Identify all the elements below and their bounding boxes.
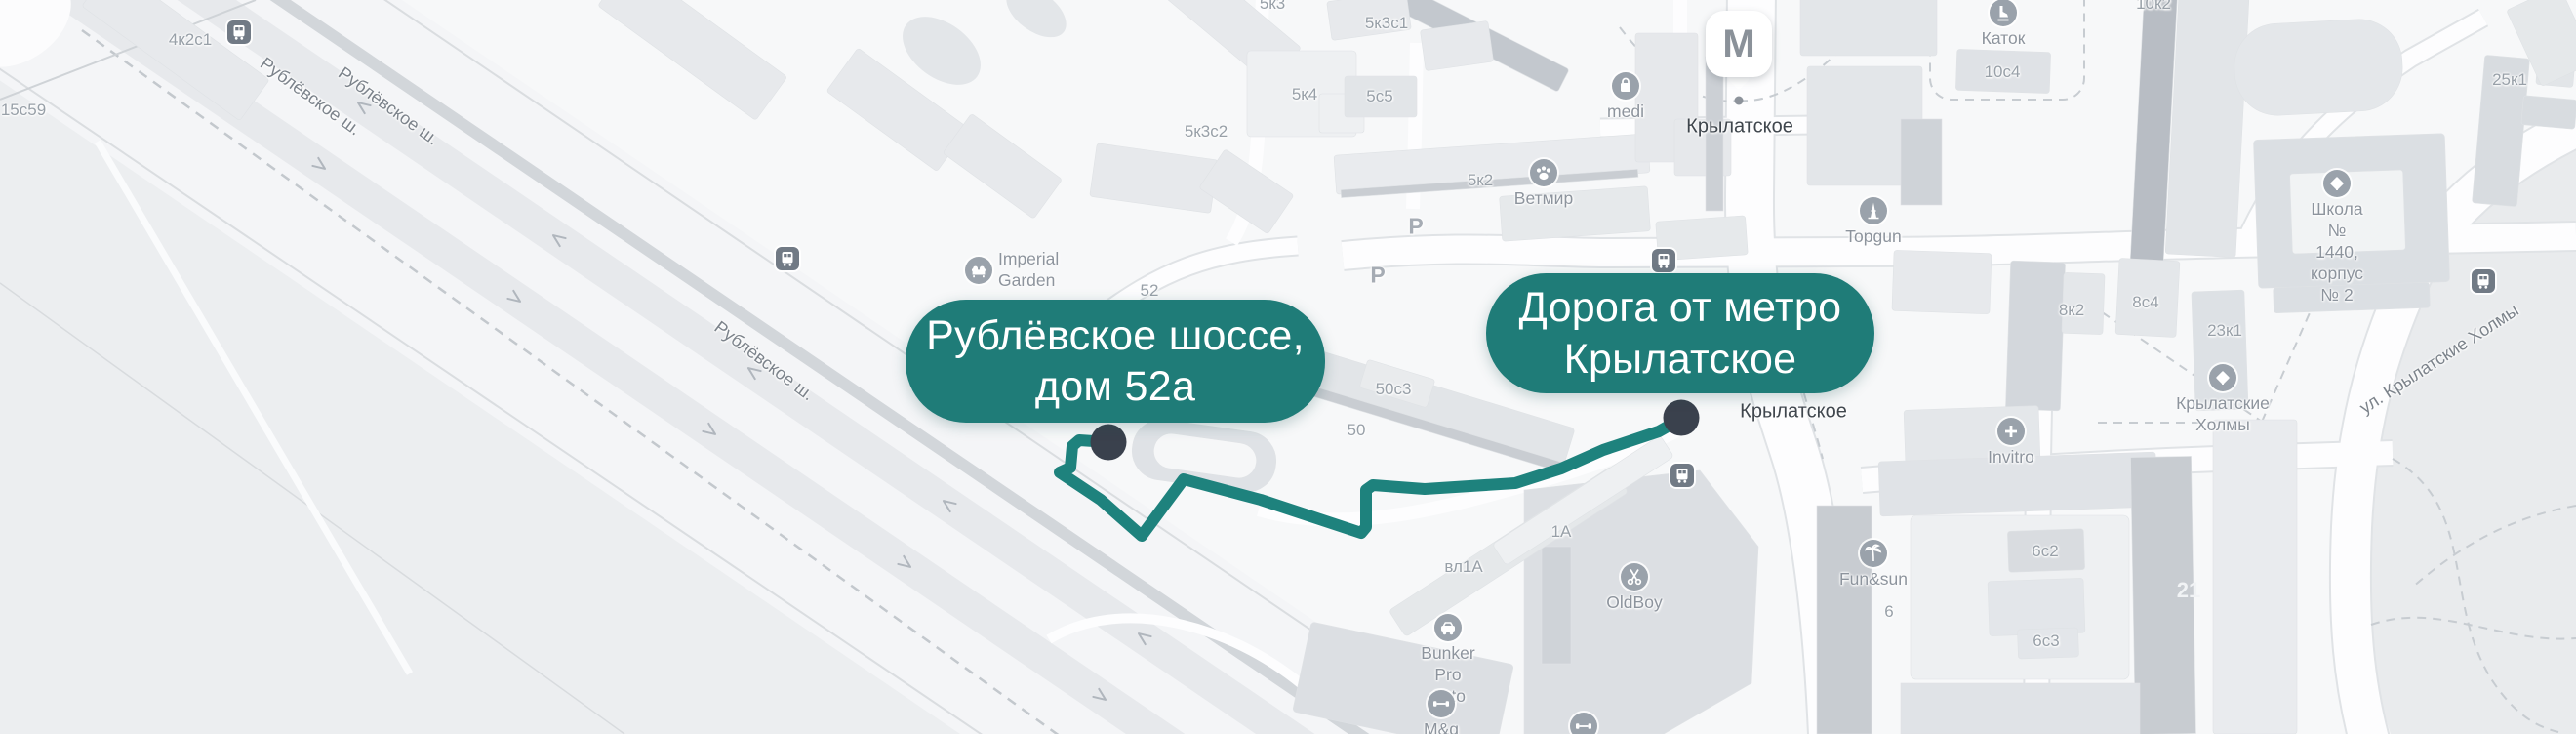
route-endpoint-dot-origin: [1664, 400, 1700, 436]
walking-route-line: [1060, 418, 1681, 536]
callout-origin-line1: Дорога от метро: [1519, 282, 1842, 333]
callout-origin-line2: Крылатское: [1564, 334, 1797, 385]
callout-destination: Рублёвское шоссе, дом 52а: [906, 300, 1325, 423]
route-endpoint-dot-destination: [1091, 425, 1127, 461]
callout-destination-line1: Рублёвское шоссе,: [926, 310, 1305, 361]
callout-destination-line2: дом 52а: [1035, 361, 1195, 412]
callout-origin: Дорога от метро Крылатское: [1486, 273, 1874, 393]
map-canvas[interactable]: 15с59Рублёвское ш.Рублёвское ш.Рублёвско…: [0, 0, 2576, 734]
